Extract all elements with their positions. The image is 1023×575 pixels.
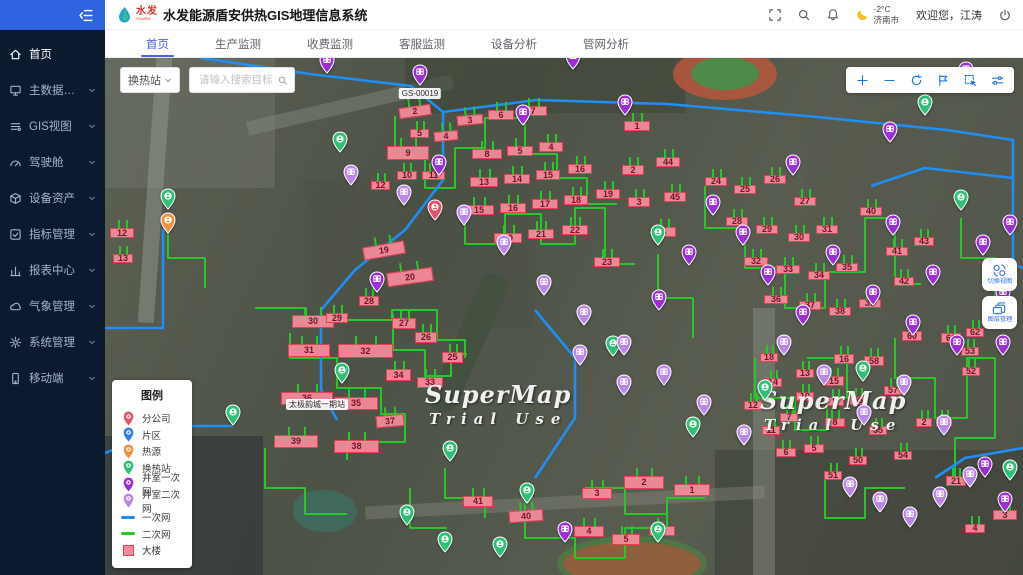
building-5[interactable]: 5	[612, 534, 640, 545]
mobile-icon	[9, 372, 22, 385]
building-52[interactable]: 52	[962, 367, 980, 376]
sidebar: 首页主数据管理GIS视图驾驶舱设备资产指标管理报表中心气象管理系统管理移动端	[0, 0, 105, 575]
station-pin[interactable]	[519, 482, 535, 504]
tab-2[interactable]: 收费监测	[284, 30, 376, 57]
building-31[interactable]: 31	[288, 344, 330, 357]
sidebar-item-assets[interactable]: 设备资产	[0, 180, 105, 216]
chevron-down-icon	[88, 230, 96, 238]
building-41[interactable]: 41	[886, 247, 908, 256]
station-pin[interactable]	[855, 360, 871, 382]
station-pin[interactable]	[650, 521, 666, 543]
building-15[interactable]: 15	[536, 170, 560, 180]
legend-item: 片区	[121, 427, 183, 444]
fullscreen-icon[interactable]	[769, 9, 781, 21]
well1-pin[interactable]	[705, 194, 721, 216]
building-44[interactable]: 44	[656, 157, 680, 167]
pipe-line	[410, 488, 447, 528]
legend-item-label: 一次网	[142, 510, 171, 524]
building-37[interactable]: 37	[376, 414, 405, 428]
sidebar-collapse-icon[interactable]	[79, 8, 94, 23]
chevron-down-icon	[164, 76, 172, 84]
building-55[interactable]: 55	[869, 426, 887, 435]
station-pin[interactable]	[160, 188, 176, 210]
header-actions: -2°C 济南市 欢迎您，江涛	[769, 4, 1011, 25]
side-button-label: 图层管理	[987, 317, 1012, 323]
station-pin[interactable]	[757, 379, 773, 401]
station-pin[interactable]	[917, 94, 933, 116]
building-7[interactable]: 7	[780, 413, 798, 422]
building-24[interactable]: 24	[705, 177, 727, 186]
logo-droplet-icon	[117, 6, 132, 23]
building-13[interactable]: 13	[470, 177, 498, 187]
building-12[interactable]: 12	[371, 181, 390, 190]
well2-pin[interactable]	[616, 374, 632, 396]
welcome-text: 欢迎您，江涛	[916, 7, 982, 23]
sidebar-item-reports[interactable]: 报表中心	[0, 252, 105, 288]
building-25[interactable]: 25	[734, 185, 756, 194]
app-logo: 水发 SHUIFA	[117, 6, 163, 23]
sidebar-item-label: 系统管理	[29, 334, 75, 350]
station-name-label: 太极韵城一期站	[286, 399, 348, 410]
pipe-line	[535, 310, 575, 478]
system-icon	[9, 336, 22, 349]
well2-pin[interactable]	[696, 394, 712, 416]
well2-pin[interactable]	[856, 404, 872, 426]
building-38[interactable]: 38	[334, 440, 379, 453]
sidebar-item-label: GIS视图	[29, 118, 72, 134]
well1-pin[interactable]	[319, 58, 335, 74]
building-27[interactable]: 27	[392, 318, 416, 329]
legend-square-glyph	[121, 545, 135, 556]
well1-pin[interactable]	[977, 456, 993, 478]
station-pin[interactable]	[437, 531, 453, 553]
chevron-down-icon	[88, 86, 96, 94]
building-3[interactable]: 3	[582, 488, 612, 499]
station-pin[interactable]	[492, 536, 508, 558]
logo-text: 水发 SHUIFA	[136, 7, 158, 22]
zoom-in-button[interactable]	[856, 74, 869, 87]
well1-pin[interactable]	[995, 334, 1011, 356]
well1-pin[interactable]	[997, 491, 1013, 513]
tab-bar: 首页生产监测收费监测客服监测设备分析管网分析	[105, 30, 1023, 58]
well2-pin[interactable]	[572, 344, 588, 366]
page-title: 水发能源盾安供热GIS地理信息系统	[163, 5, 367, 24]
building-16[interactable]: 16	[834, 354, 854, 364]
well1-pin[interactable]	[681, 244, 697, 266]
building-42[interactable]: 42	[894, 277, 914, 286]
building-10[interactable]: 10	[796, 392, 814, 401]
asset-icon	[9, 192, 22, 205]
city-name: 济南市	[873, 15, 899, 26]
building-40[interactable]: 40	[509, 509, 544, 523]
sidebar-item-gis-view[interactable]: GIS视图	[0, 108, 105, 144]
app-root: 首页主数据管理GIS视图驾驶舱设备资产指标管理报表中心气象管理系统管理移动端 水…	[0, 0, 1023, 575]
station-pin[interactable]	[399, 504, 415, 526]
building-8[interactable]: 8	[825, 418, 845, 427]
well1-pin[interactable]	[885, 214, 901, 236]
building-4[interactable]: 4	[574, 526, 604, 537]
switch-view-button[interactable]: 切换视图	[982, 258, 1017, 291]
building-5[interactable]: 5	[410, 129, 429, 138]
building-41[interactable]: 41	[463, 496, 493, 507]
sidebar-header	[0, 0, 105, 30]
building-31[interactable]: 31	[816, 225, 838, 234]
layers-icon	[992, 301, 1007, 316]
well1-pin[interactable]	[785, 154, 801, 176]
well1-pin[interactable]	[925, 264, 941, 286]
well2-pin[interactable]	[343, 164, 359, 186]
search-input-wrap	[189, 67, 295, 93]
building-25[interactable]: 25	[442, 352, 463, 363]
well2-pin[interactable]	[656, 364, 672, 386]
sidebar-item-weather[interactable]: 气象管理	[0, 288, 105, 324]
well1-pin[interactable]	[431, 154, 447, 176]
map-canvas[interactable]: 2019303132272625343336353739382829294510…	[105, 58, 1023, 575]
well2-pin[interactable]	[576, 304, 592, 326]
legend-item-label: 分公司	[142, 411, 171, 425]
building-28[interactable]: 28	[359, 296, 379, 306]
building-4[interactable]: 4	[539, 142, 563, 152]
building-62[interactable]: 62	[966, 328, 984, 337]
moon-icon	[856, 8, 869, 21]
building-2[interactable]: 2	[624, 476, 664, 489]
building-29[interactable]: 29	[326, 313, 348, 323]
cockpit-icon	[9, 156, 22, 169]
sidebar-item-label: 气象管理	[29, 298, 75, 314]
building-34[interactable]: 34	[808, 271, 830, 280]
well2-pin[interactable]	[736, 424, 752, 446]
building-27[interactable]: 27	[794, 197, 816, 206]
building-8[interactable]: 8	[472, 149, 502, 159]
map-side-buttons: 切换视图图层管理	[982, 258, 1017, 329]
building-2[interactable]: 2	[622, 165, 644, 175]
legend-item-label: 大楼	[142, 543, 161, 557]
well1-pin[interactable]	[905, 314, 921, 336]
sidebar-menu: 首页主数据管理GIS视图驾驶舱设备资产指标管理报表中心气象管理系统管理移动端	[0, 30, 105, 396]
sidebar-item-home[interactable]: 首页	[0, 36, 105, 72]
sidebar-item-label: 报表中心	[29, 262, 75, 278]
weather-icon	[9, 300, 22, 313]
well1-pin[interactable]	[795, 304, 811, 326]
building-26[interactable]: 26	[415, 332, 437, 343]
building-14[interactable]: 14	[504, 174, 530, 184]
building-18[interactable]: 18	[564, 195, 588, 205]
building-11[interactable]: 11	[762, 426, 780, 435]
building-33[interactable]: 33	[776, 265, 800, 274]
map-toolbar	[846, 67, 1014, 93]
sidebar-item-mobile[interactable]: 移动端	[0, 360, 105, 396]
building-9[interactable]: 9	[387, 146, 429, 160]
building-6[interactable]: 6	[776, 448, 796, 457]
tab-0[interactable]: 首页	[123, 30, 192, 57]
notifications-bell-icon[interactable]	[827, 8, 839, 21]
pipe-line	[825, 478, 905, 518]
search-icon[interactable]	[278, 75, 287, 86]
well2-pin[interactable]	[776, 334, 792, 356]
station-pin[interactable]	[685, 416, 701, 438]
building-13[interactable]: 13	[796, 369, 814, 378]
building-43[interactable]: 43	[914, 237, 934, 246]
sidebar-item-system[interactable]: 系统管理	[0, 324, 105, 360]
tab-1[interactable]: 生产监测	[192, 30, 284, 57]
building-36[interactable]: 36	[764, 295, 788, 304]
tab-3[interactable]: 客服监测	[376, 30, 468, 57]
map-search-bar: 换热站	[120, 67, 295, 93]
chevron-down-icon	[88, 266, 96, 274]
station-pin[interactable]	[225, 404, 241, 426]
well2-pin[interactable]	[616, 334, 632, 356]
well1-pin[interactable]	[735, 224, 751, 246]
well1-pin[interactable]	[882, 121, 898, 143]
layer-manage-button[interactable]: 图层管理	[982, 296, 1017, 329]
well2-pin[interactable]	[816, 364, 832, 386]
legend-title: 图例	[121, 387, 183, 403]
legend-pin-glyph	[121, 477, 135, 492]
legend-item-label: 热源	[142, 444, 161, 458]
tab-4[interactable]: 设备分析	[468, 30, 560, 57]
building-6[interactable]: 6	[488, 110, 514, 120]
main-column: 水发 SHUIFA 水发能源盾安供热GIS地理信息系统 -2°	[105, 0, 1023, 575]
building-23[interactable]: 23	[594, 257, 620, 267]
well2-pin[interactable]	[932, 486, 948, 508]
search-category-select[interactable]: 换热站	[120, 67, 180, 93]
station-pin[interactable]	[332, 131, 348, 153]
chevron-down-icon	[88, 374, 96, 382]
sidebar-item-label: 主数据管理	[29, 82, 81, 98]
building-1[interactable]: 1	[674, 484, 710, 496]
sidebar-item-label: 指标管理	[29, 226, 75, 242]
well1-pin[interactable]	[412, 64, 428, 86]
pipe-line	[265, 448, 347, 514]
well2-pin[interactable]	[896, 374, 912, 396]
building-5[interactable]: 5	[804, 444, 824, 453]
station-pin[interactable]	[650, 224, 666, 246]
well2-pin[interactable]	[842, 476, 858, 498]
pin-label: GS-00019	[399, 88, 441, 99]
chevron-down-icon	[88, 338, 96, 346]
building-26[interactable]: 26	[764, 175, 786, 184]
data-icon	[9, 84, 22, 97]
well1-pin[interactable]	[557, 521, 573, 543]
building-33[interactable]: 33	[417, 377, 443, 388]
building-12[interactable]: 12	[744, 401, 762, 410]
well2-pin[interactable]	[902, 506, 918, 528]
building-16[interactable]: 16	[500, 203, 526, 213]
switch-icon	[992, 263, 1007, 278]
well1-pin[interactable]	[1002, 214, 1018, 236]
measure-button[interactable]	[937, 74, 950, 87]
chevron-down-icon	[88, 158, 96, 166]
building-30[interactable]: 30	[788, 233, 810, 242]
well2-pin[interactable]	[396, 184, 412, 206]
legend-items: 分公司片区热源换热站井室一次网井室二次网一次网二次网大楼	[121, 410, 183, 559]
legend-item-label: 二次网	[142, 527, 171, 541]
station-pin[interactable]	[953, 189, 969, 211]
tab-5[interactable]: 管网分析	[560, 30, 652, 57]
legend-pin-glyph	[121, 493, 135, 508]
home-icon	[9, 48, 22, 61]
well1-pin[interactable]	[865, 284, 881, 306]
gis-icon	[9, 120, 22, 133]
legend-item: 二次网	[121, 526, 183, 543]
building-5[interactable]: 5	[507, 146, 533, 156]
building-17[interactable]: 17	[532, 199, 558, 209]
well1-pin[interactable]	[515, 104, 531, 126]
sidebar-item-label: 移动端	[29, 370, 64, 386]
chevron-down-icon	[88, 302, 96, 310]
legend-line-glyph	[121, 532, 135, 535]
station-pin[interactable]	[442, 440, 458, 462]
side-button-label: 切换视图	[987, 279, 1012, 285]
legend-pin-glyph	[121, 444, 135, 459]
building-13[interactable]: 13	[113, 254, 133, 263]
building-54[interactable]: 54	[894, 451, 912, 460]
pipe-line	[525, 498, 705, 558]
well2-pin[interactable]	[496, 234, 512, 256]
search-category-value: 换热站	[128, 72, 161, 88]
temperature-value: -2°C	[873, 4, 899, 15]
branch-pin[interactable]	[427, 199, 443, 221]
search-icon[interactable]	[798, 9, 810, 21]
building-10[interactable]: 10	[397, 171, 417, 180]
pipe-line	[445, 468, 485, 518]
building-22[interactable]: 22	[562, 225, 588, 235]
legend-item: 大楼	[121, 542, 183, 559]
kpi-icon	[9, 228, 22, 241]
map-legend: 图例 分公司片区热源换热站井室一次网井室二次网一次网二次网大楼	[112, 380, 192, 568]
building-4[interactable]: 4	[965, 524, 985, 533]
building-21[interactable]: 21	[528, 229, 554, 239]
well1-pin[interactable]	[369, 271, 385, 293]
building-51[interactable]: 51	[824, 471, 842, 480]
station-pin[interactable]	[1002, 459, 1018, 481]
station-pin[interactable]	[334, 362, 350, 384]
legend-item-label: 片区	[142, 428, 161, 442]
building-32[interactable]: 32	[338, 344, 393, 358]
well2-pin[interactable]	[936, 414, 952, 436]
app-header: 水发 SHUIFA 水发能源盾安供热GIS地理信息系统 -2°	[105, 0, 1023, 30]
logout-power-icon[interactable]	[999, 9, 1011, 21]
building-50[interactable]: 50	[849, 456, 867, 465]
well2-pin[interactable]	[456, 204, 472, 226]
well2-pin[interactable]	[962, 466, 978, 488]
source-pin[interactable]	[160, 212, 176, 234]
zoom-out-button[interactable]	[883, 74, 896, 87]
layer-config-button[interactable]	[991, 74, 1004, 87]
building-38[interactable]: 38	[829, 307, 851, 316]
building-2[interactable]: 2	[916, 418, 932, 427]
legend-pin-glyph	[121, 460, 135, 475]
legend-pin-glyph	[121, 427, 135, 442]
legend-pin-glyph	[121, 411, 135, 426]
building-12[interactable]: 12	[110, 228, 134, 238]
building-9[interactable]: 9	[826, 397, 844, 406]
building-3[interactable]: 3	[628, 197, 650, 207]
legend-item: 分公司	[121, 410, 183, 427]
well1-pin[interactable]	[617, 94, 633, 116]
sidebar-item-master-data[interactable]: 主数据管理	[0, 72, 105, 108]
sidebar-item-label: 驾驶舱	[29, 154, 64, 170]
well1-pin[interactable]	[975, 234, 991, 256]
well1-pin[interactable]	[825, 244, 841, 266]
building-40[interactable]: 40	[860, 207, 882, 216]
building-16[interactable]: 16	[568, 164, 592, 174]
weather-widget: -2°C 济南市	[856, 4, 899, 25]
legend-item: 井室二次网	[121, 493, 183, 510]
well1-pin[interactable]	[651, 289, 667, 311]
legend-item: 热源	[121, 443, 183, 460]
building-34[interactable]: 34	[386, 369, 411, 381]
sidebar-item-kpi[interactable]: 指标管理	[0, 216, 105, 252]
well2-pin[interactable]	[872, 491, 888, 513]
sidebar-item-label: 设备资产	[29, 190, 75, 206]
well1-pin[interactable]	[565, 58, 581, 70]
chevron-down-icon	[88, 122, 96, 130]
building-4[interactable]: 4	[434, 130, 459, 142]
well2-pin[interactable]	[536, 274, 552, 296]
well1-pin[interactable]	[760, 264, 776, 286]
select-area-button[interactable]	[964, 74, 977, 87]
reset-view-button[interactable]	[910, 74, 923, 87]
building-29[interactable]: 29	[756, 225, 778, 234]
building-45[interactable]: 45	[664, 192, 686, 202]
legend-line-glyph	[121, 516, 135, 519]
building-39[interactable]: 39	[274, 435, 318, 448]
chevron-down-icon	[88, 194, 96, 202]
report-icon	[9, 264, 22, 277]
search-input[interactable]	[197, 73, 274, 87]
pipe-line	[871, 168, 1013, 186]
building-1[interactable]: 1	[624, 121, 650, 131]
building-19[interactable]: 19	[596, 189, 620, 199]
sidebar-item-cockpit[interactable]: 驾驶舱	[0, 144, 105, 180]
well1-pin[interactable]	[949, 334, 965, 356]
sidebar-item-label: 首页	[29, 46, 52, 62]
